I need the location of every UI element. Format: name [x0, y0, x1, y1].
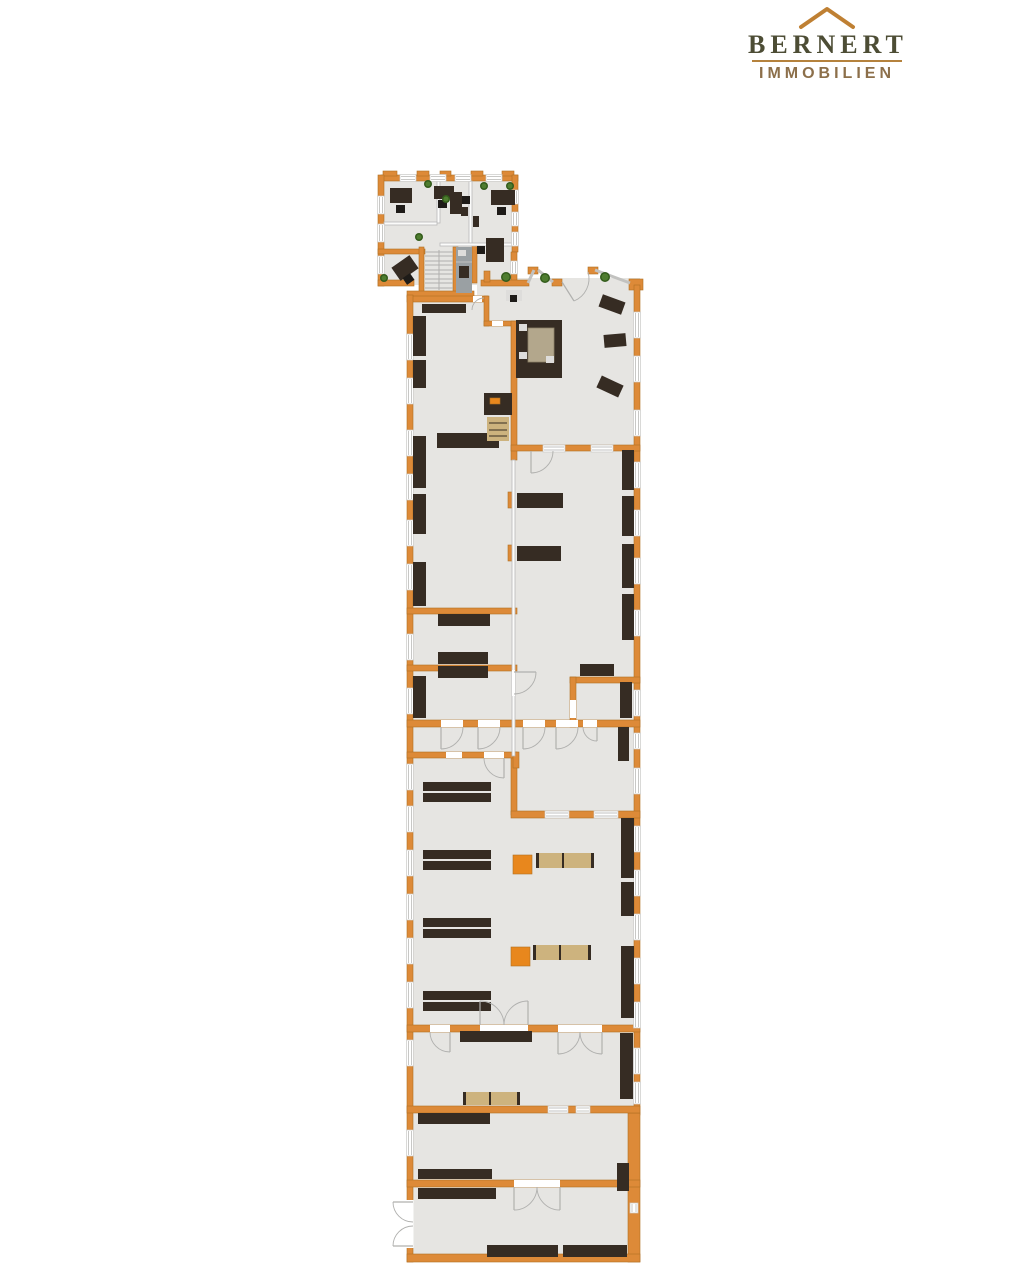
window: [407, 430, 414, 456]
chair: [519, 324, 527, 331]
door-opening: [523, 720, 545, 727]
shelf: [438, 666, 488, 678]
window: [407, 634, 414, 660]
shelf: [418, 1188, 496, 1199]
window: [407, 806, 414, 832]
shelf: [413, 494, 426, 534]
shelf: [423, 918, 491, 927]
logo-divider: [752, 60, 902, 62]
desk: [491, 190, 515, 205]
wall: [471, 171, 483, 176]
window: [511, 261, 518, 274]
table-edge: [591, 853, 594, 868]
shelf: [423, 1002, 491, 1011]
window: [545, 811, 569, 818]
shelf: [413, 316, 426, 356]
window: [634, 558, 641, 584]
window: [634, 1002, 641, 1028]
wall: [628, 1113, 640, 1262]
plant: [426, 182, 431, 187]
shelf: [423, 861, 491, 870]
cart-detail: [490, 398, 500, 404]
door-opening: [441, 720, 463, 727]
shelf: [621, 818, 634, 878]
window: [407, 764, 414, 790]
chair: [396, 205, 405, 213]
printer: [461, 207, 468, 216]
door-opening: [407, 1200, 414, 1248]
plant: [482, 184, 487, 189]
window: [634, 610, 641, 636]
plant: [542, 275, 549, 282]
logo-subtitle: IMMOBILIEN: [748, 65, 906, 83]
window: [455, 175, 471, 182]
window: [634, 410, 641, 436]
cabinet: [473, 216, 479, 227]
wall: [378, 249, 425, 254]
desk: [390, 188, 412, 203]
shelf: [621, 946, 634, 1018]
wc-sink: [458, 250, 466, 256]
door-opening: [492, 321, 503, 326]
window: [634, 1048, 641, 1074]
shelf: [622, 450, 634, 490]
window: [543, 445, 565, 452]
wall: [552, 279, 562, 286]
pillar: [513, 855, 532, 874]
page: BERNERT IMMOBILIEN: [0, 0, 1018, 1280]
wc-toilet: [459, 266, 469, 278]
door-opening: [480, 1025, 528, 1032]
table-edge: [559, 945, 561, 960]
shelf: [423, 991, 491, 1000]
plant: [382, 276, 387, 281]
table: [463, 1092, 520, 1105]
pillar: [511, 947, 530, 966]
window: [634, 870, 641, 896]
wall: [472, 245, 477, 283]
roof-icon: [795, 6, 859, 30]
wall: [407, 1106, 640, 1113]
shelf: [620, 682, 632, 718]
door-opening: [473, 296, 482, 302]
chair: [519, 352, 527, 359]
shelf: [517, 493, 563, 508]
door-opening: [558, 1025, 602, 1032]
shelf: [621, 882, 634, 916]
shelf: [487, 1245, 558, 1257]
shelf: [423, 929, 491, 938]
interior-wall: [512, 460, 515, 756]
shelf: [413, 676, 426, 718]
window: [400, 175, 416, 182]
interior-wall: [469, 181, 472, 245]
door-opening: [512, 670, 515, 696]
shelf: [618, 727, 629, 761]
shelf: [438, 652, 488, 664]
window: [634, 914, 641, 940]
table-edge: [489, 1092, 491, 1105]
shelf: [423, 793, 491, 802]
window: [634, 510, 641, 536]
plant: [508, 184, 513, 189]
door-opening: [484, 752, 504, 758]
window: [486, 175, 502, 182]
shelf: [622, 544, 634, 588]
shelf: [438, 614, 490, 626]
plant: [503, 274, 510, 281]
floorplan-svg: [0, 0, 1018, 1280]
wall: [511, 445, 640, 451]
logo-name: BERNERT: [748, 31, 906, 58]
door-opening: [556, 720, 578, 727]
window: [407, 894, 414, 920]
shelf: [423, 782, 491, 791]
door-opening: [430, 1025, 450, 1032]
wall: [511, 811, 640, 818]
desk: [450, 192, 462, 214]
table-edge: [588, 945, 591, 960]
door-opening: [583, 720, 597, 727]
window: [407, 982, 414, 1008]
wall: [419, 247, 424, 293]
door-opening: [514, 1180, 560, 1187]
chair: [510, 295, 517, 302]
interior-wall: [384, 222, 437, 225]
window: [634, 690, 641, 716]
wall: [417, 171, 429, 176]
window: [634, 958, 641, 984]
window: [378, 224, 385, 242]
window: [407, 1130, 414, 1156]
shelf: [622, 496, 634, 536]
bench: [603, 333, 626, 348]
plant: [417, 235, 422, 240]
window: [634, 768, 641, 794]
window: [548, 1106, 568, 1113]
table-edge: [533, 945, 536, 960]
window: [407, 334, 414, 360]
door-opening: [570, 700, 576, 718]
window: [378, 256, 385, 274]
window: [407, 474, 414, 500]
window: [634, 462, 641, 488]
plant: [444, 197, 449, 202]
wall: [484, 271, 490, 282]
window: [634, 733, 641, 749]
shelf: [422, 304, 466, 313]
table-edge: [463, 1092, 466, 1105]
pallet: [487, 417, 509, 441]
window: [576, 1106, 590, 1113]
wall: [383, 171, 397, 176]
table-edge: [562, 853, 564, 868]
window: [634, 1082, 641, 1104]
chair: [497, 207, 506, 215]
shelf: [423, 850, 491, 859]
window: [407, 938, 414, 964]
window: [407, 378, 414, 404]
window: [407, 1040, 414, 1066]
shelf: [413, 562, 426, 606]
window: [634, 826, 641, 852]
window: [630, 1203, 638, 1213]
window: [430, 175, 446, 182]
shelf: [413, 360, 426, 388]
shelf: [418, 1113, 490, 1124]
window: [634, 312, 641, 338]
table-edge: [517, 1092, 520, 1105]
shelf: [563, 1245, 627, 1257]
window: [591, 445, 613, 452]
table-edge: [536, 853, 539, 868]
shelf: [413, 436, 426, 488]
wall: [407, 608, 517, 614]
window: [512, 232, 519, 246]
window: [634, 356, 641, 382]
table: [536, 853, 594, 868]
table: [533, 945, 591, 960]
shelf: [418, 1169, 492, 1179]
window: [512, 212, 519, 226]
window: [378, 196, 385, 214]
logo: BERNERT IMMOBILIEN: [748, 6, 906, 83]
chair: [546, 356, 554, 363]
chair: [477, 246, 485, 254]
window: [594, 811, 618, 818]
shelf: [460, 1031, 532, 1042]
floor: [407, 1025, 640, 1262]
window: [407, 688, 414, 714]
window: [407, 564, 414, 590]
shelf: [517, 546, 561, 561]
window: [407, 850, 414, 876]
desk: [486, 238, 504, 262]
chair: [462, 196, 470, 204]
window: [407, 520, 414, 546]
plant: [602, 274, 609, 281]
shelf: [622, 594, 634, 640]
shelf: [617, 1163, 629, 1191]
door-opening: [478, 720, 500, 727]
shelf: [620, 1033, 633, 1099]
shelf: [580, 664, 614, 676]
door-opening: [446, 752, 462, 758]
